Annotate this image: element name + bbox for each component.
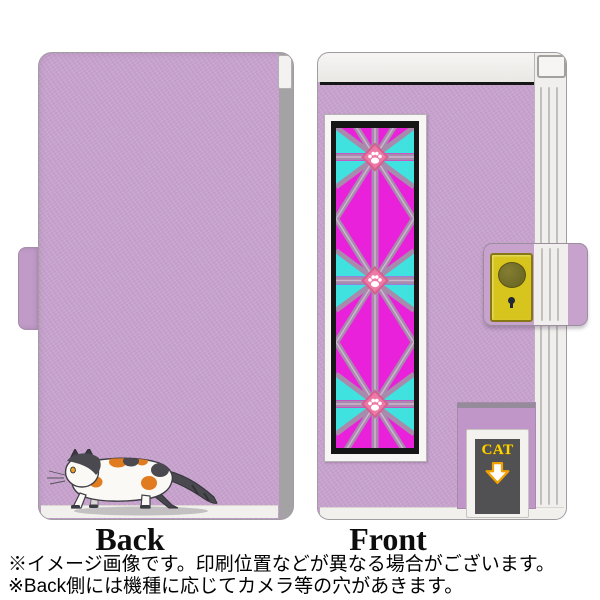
cat-badge-text: CAT — [475, 442, 520, 459]
case-back-view — [38, 52, 294, 520]
cat-badge-plate: CAT — [466, 429, 529, 518]
cat-badge: CAT — [475, 439, 520, 514]
down-arrow-icon — [484, 461, 511, 485]
strap-hole — [278, 55, 292, 89]
back-view-label: Back — [60, 521, 200, 558]
spine-ridge — [557, 248, 559, 321]
strap-hole — [537, 55, 566, 78]
clasp-plate — [490, 253, 533, 322]
cat-eye — [71, 467, 76, 473]
panel-frame — [331, 121, 419, 454]
magnetic-clasp-strap — [483, 243, 588, 326]
cat-head — [47, 449, 101, 487]
cat-whiskers — [47, 471, 65, 484]
cat-illustration — [46, 449, 226, 519]
case-spine-edge — [279, 53, 293, 519]
case-top-band — [318, 53, 566, 82]
keyhole-detail — [508, 297, 515, 304]
disclaimer-line-1: ※イメージ画像です。印刷位置などが異なる場合がございます。 — [8, 554, 598, 575]
asanoha-paw-pattern — [336, 128, 414, 448]
spine-ridge — [541, 248, 543, 321]
stained-glass-panel — [324, 114, 427, 462]
snap-button — [498, 262, 526, 288]
front-view-label: Front — [318, 521, 458, 558]
inset-top-edge — [457, 403, 535, 408]
cat-badge-inset: CAT — [457, 402, 536, 509]
product-image: CAT Back Front ※イメージ画像です。印刷位置などが異なる場合がござ… — [0, 0, 600, 600]
spine-ridge — [549, 248, 551, 321]
cover-seam-line — [320, 82, 534, 85]
disclaimer-line-2: ※Back側には機種に応じてカメラ等の穴があきます。 — [8, 576, 598, 597]
